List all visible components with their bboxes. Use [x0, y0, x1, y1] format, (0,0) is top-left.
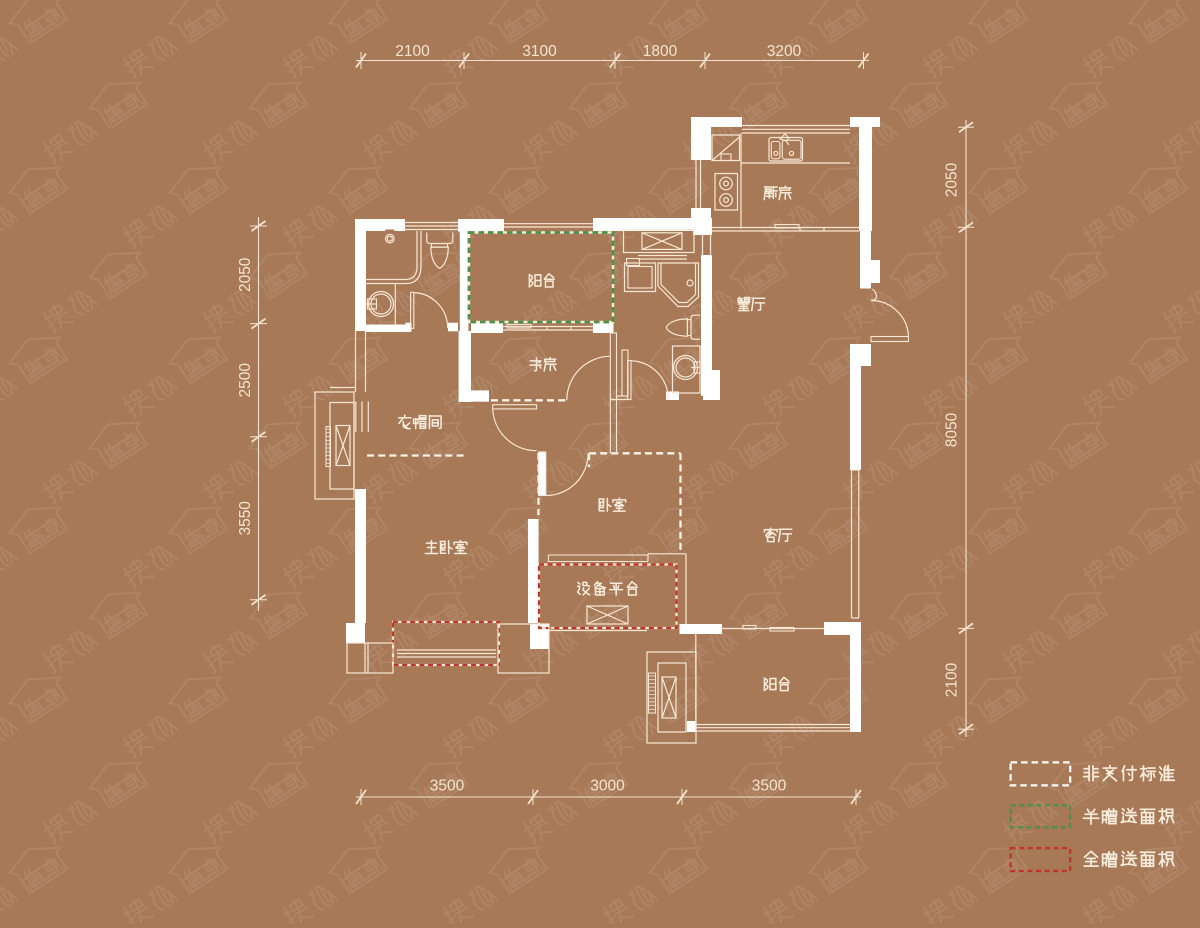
svg-text:2100: 2100: [395, 43, 430, 60]
svg-text:3500: 3500: [752, 778, 787, 795]
svg-text:2500: 2500: [237, 363, 254, 398]
svg-text:3200: 3200: [767, 43, 802, 60]
svg-text:3550: 3550: [237, 501, 254, 536]
svg-text:1800: 1800: [643, 43, 678, 60]
svg-text:3100: 3100: [522, 43, 557, 60]
svg-text:2050: 2050: [237, 257, 254, 292]
svg-text:2050: 2050: [944, 162, 961, 197]
svg-text:3500: 3500: [430, 778, 465, 795]
svg-text:3000: 3000: [590, 778, 625, 795]
svg-text:2100: 2100: [944, 662, 961, 697]
svg-text:8050: 8050: [944, 412, 961, 447]
